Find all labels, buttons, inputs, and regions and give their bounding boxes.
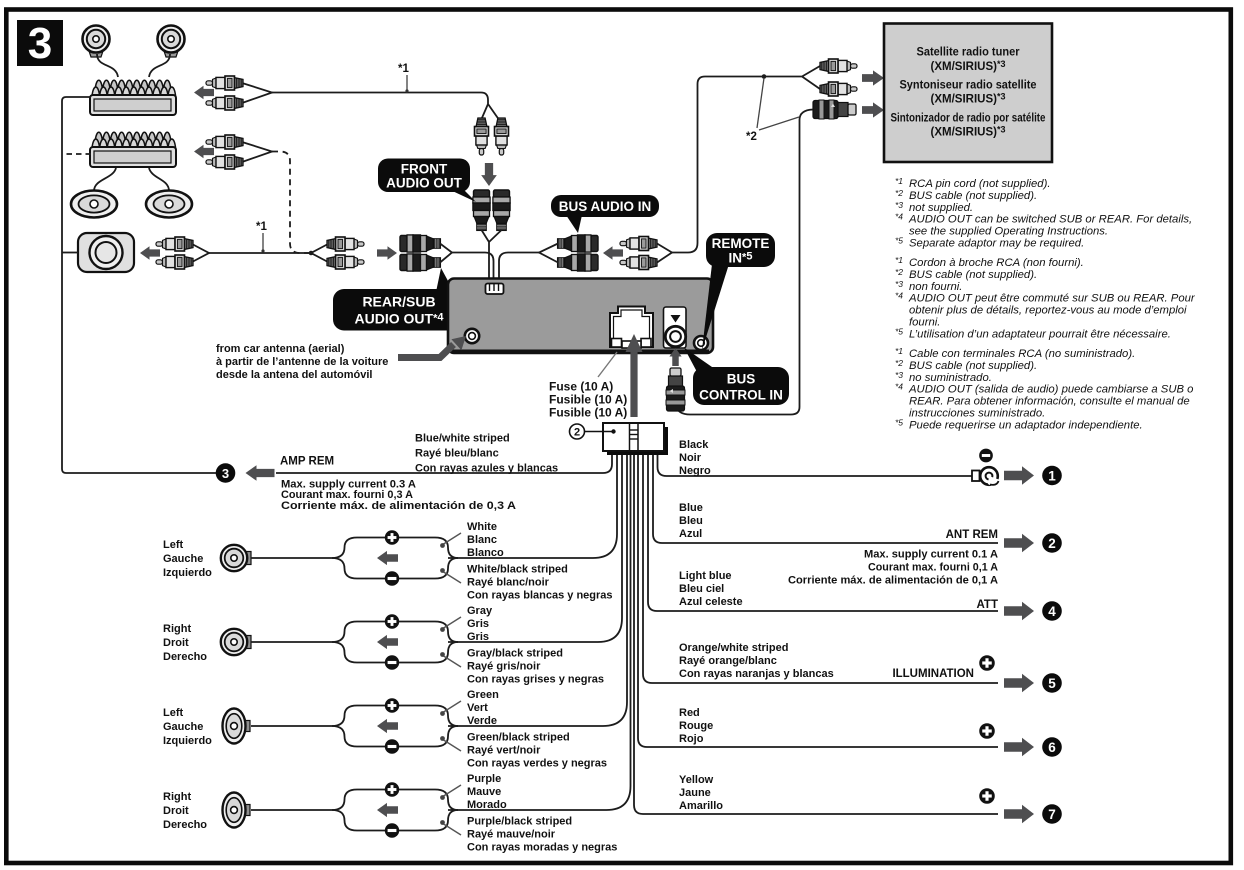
svg-text:AUDIO OUT peut être commuté su: AUDIO OUT peut être commuté sur SUB ou R… <box>908 293 1196 305</box>
svg-text:fourni.: fourni. <box>909 317 940 329</box>
svg-text:obtenir plus de détails, repor: obtenir plus de détails, reportez-vous a… <box>909 305 1187 317</box>
svg-text:Rayé orange/blanc: Rayé orange/blanc <box>679 655 777 667</box>
svg-text:(XM/SIRIUS)*3: (XM/SIRIUS)*3 <box>931 92 1006 106</box>
svg-text:Blanc: Blanc <box>467 534 497 546</box>
svg-text:Con rayas blancas y negras: Con rayas blancas y negras <box>467 590 613 602</box>
svg-text:Blanco: Blanco <box>467 547 504 559</box>
svg-text:*4: *4 <box>895 382 903 392</box>
svg-text:Green: Green <box>467 689 499 701</box>
svg-text:Purple/black striped: Purple/black striped <box>467 816 572 828</box>
svg-text:Rouge: Rouge <box>679 720 713 732</box>
svg-text:Rayé mauve/noir: Rayé mauve/noir <box>467 829 556 841</box>
svg-text:7: 7 <box>1048 807 1056 822</box>
svg-text:3: 3 <box>222 466 229 481</box>
svg-text:*5: *5 <box>895 417 903 427</box>
svg-text:Con rayas verdes y negras: Con rayas verdes y negras <box>467 758 607 770</box>
svg-text:*1: *1 <box>398 63 409 75</box>
svg-text:Verde: Verde <box>467 715 497 727</box>
svg-text:*1: *1 <box>895 346 903 356</box>
svg-text:Cable con terminales RCA (no s: Cable con terminales RCA (no suministrad… <box>909 348 1135 360</box>
svg-text:BUS cable (not supplied).: BUS cable (not supplied). <box>909 190 1037 202</box>
svg-text:instrucciones suministrado.: instrucciones suministrado. <box>909 408 1045 420</box>
svg-text:ATT: ATT <box>976 599 998 611</box>
svg-text:Gris: Gris <box>467 618 489 630</box>
svg-text:from car antenna (aerial): from car antenna (aerial) <box>216 343 345 355</box>
svg-text:desde la antena del automóvil: desde la antena del automóvil <box>216 369 373 381</box>
svg-text:*3: *3 <box>895 279 903 289</box>
svg-text:Yellow: Yellow <box>679 774 714 786</box>
svg-text:Con rayas naranjas y blancas: Con rayas naranjas y blancas <box>679 668 834 680</box>
svg-text:Rayé vert/noir: Rayé vert/noir <box>467 745 541 757</box>
svg-text:BUS cable (not supplied).: BUS cable (not supplied). <box>909 269 1037 281</box>
svg-text:Green/black striped: Green/black striped <box>467 732 570 744</box>
svg-text:Gray/black striped: Gray/black striped <box>467 648 563 660</box>
svg-text:Purple: Purple <box>467 773 501 785</box>
svg-text:Light blue: Light blue <box>679 570 732 582</box>
svg-text:Con rayas grises y negras: Con rayas grises y negras <box>467 674 604 686</box>
svg-text:Derecho: Derecho <box>163 651 207 663</box>
svg-text:(XM/SIRIUS)*3: (XM/SIRIUS)*3 <box>931 125 1006 139</box>
svg-text:*4: *4 <box>895 212 903 222</box>
svg-text:White: White <box>467 521 497 533</box>
svg-text:Left: Left <box>163 539 184 551</box>
svg-text:AUDIO OUT (salida de audio) pu: AUDIO OUT (salida de audio) puede cambia… <box>908 384 1193 396</box>
svg-text:Fuse (10 A): Fuse (10 A) <box>549 380 613 394</box>
svg-text:(XM/SIRIUS)*3: (XM/SIRIUS)*3 <box>931 59 1006 73</box>
svg-text:REAR. Para obtener información: REAR. Para obtener información, consulte… <box>909 396 1190 408</box>
svg-text:RCA pin cord (not supplied).: RCA pin cord (not supplied). <box>909 178 1051 190</box>
svg-text:BUS: BUS <box>727 372 756 387</box>
svg-text:Red: Red <box>679 707 700 719</box>
svg-text:Puede requerirse un adaptador: Puede requerirse un adaptador independie… <box>909 419 1143 431</box>
svg-text:3: 3 <box>28 19 52 68</box>
svg-text:AUDIO OUT*4: AUDIO OUT*4 <box>355 311 445 327</box>
svg-text:Corriente máx. de alimentación: Corriente máx. de alimentación de 0,1 A <box>788 575 998 587</box>
svg-text:ANT REM: ANT REM <box>946 529 998 541</box>
svg-text:Con rayas azules y blancas: Con rayas azules y blancas <box>415 463 558 475</box>
svg-text:Droit: Droit <box>163 805 189 817</box>
svg-text:*1: *1 <box>256 221 267 233</box>
svg-text:Gray: Gray <box>467 605 493 617</box>
svg-text:*1: *1 <box>895 176 903 186</box>
svg-text:Blue: Blue <box>679 502 703 514</box>
svg-text:Droit: Droit <box>163 637 189 649</box>
svg-text:not supplied.: not supplied. <box>909 202 973 214</box>
svg-text:Fusible (10 A): Fusible (10 A) <box>549 406 627 420</box>
svg-text:Fusible (10 A): Fusible (10 A) <box>549 393 627 407</box>
svg-text:Azul: Azul <box>679 528 702 540</box>
svg-text:AUDIO OUT: AUDIO OUT <box>386 176 463 191</box>
svg-text:Mauve: Mauve <box>467 786 501 798</box>
svg-text:Syntoniseur radio satellite: Syntoniseur radio satellite <box>900 80 1037 92</box>
svg-text:Blue/white striped: Blue/white striped <box>415 433 510 445</box>
svg-text:Derecho: Derecho <box>163 819 207 831</box>
svg-text:REMOTE: REMOTE <box>712 236 770 251</box>
svg-text:non fourni.: non fourni. <box>909 281 962 293</box>
svg-text:6: 6 <box>1048 740 1056 755</box>
svg-text:à partir de l’antenne de la vo: à partir de l’antenne de la voiture <box>216 356 388 368</box>
svg-text:2: 2 <box>1048 536 1056 551</box>
svg-text:Con rayas moradas y negras: Con rayas moradas y negras <box>467 842 617 854</box>
svg-text:Gris: Gris <box>467 631 489 643</box>
svg-text:see the supplied Operating Ins: see the supplied Operating Instructions. <box>909 226 1108 238</box>
svg-text:Gauche: Gauche <box>163 721 203 733</box>
svg-text:2: 2 <box>574 427 580 439</box>
svg-text:5: 5 <box>1048 676 1056 691</box>
svg-text:Vert: Vert <box>467 702 488 714</box>
svg-text:Izquierdo: Izquierdo <box>163 735 212 747</box>
svg-text:*3: *3 <box>895 370 903 380</box>
svg-text:Right: Right <box>163 791 191 803</box>
svg-text:*2: *2 <box>895 267 903 277</box>
svg-text:Rayé bleu/blanc: Rayé bleu/blanc <box>415 448 499 460</box>
svg-text:L’utilisation d’un adaptateur: L’utilisation d’un adaptateur pourrait ê… <box>909 328 1171 340</box>
svg-text:Courant max. fourni 0,1 A: Courant max. fourni 0,1 A <box>868 562 998 574</box>
svg-text:Morado: Morado <box>467 799 507 811</box>
svg-text:CONTROL IN: CONTROL IN <box>699 388 783 403</box>
svg-text:Sintonizador de radio por saté: Sintonizador de radio por satélite <box>891 113 1046 125</box>
svg-text:Bleu: Bleu <box>679 515 703 527</box>
svg-text:Izquierdo: Izquierdo <box>163 567 212 579</box>
svg-text:White/black striped: White/black striped <box>467 564 568 576</box>
svg-text:Bleu ciel: Bleu ciel <box>679 583 724 595</box>
svg-text:no suministrado.: no suministrado. <box>909 372 992 384</box>
svg-text:Black: Black <box>679 439 709 451</box>
svg-text:*4: *4 <box>895 291 903 301</box>
svg-text:Satellite radio tuner: Satellite radio tuner <box>917 47 1021 59</box>
svg-text:*2: *2 <box>746 131 757 143</box>
svg-text:1: 1 <box>1048 468 1056 483</box>
svg-text:Rayé blanc/noir: Rayé blanc/noir <box>467 577 550 589</box>
svg-text:Gauche: Gauche <box>163 553 203 565</box>
svg-text:Jaune: Jaune <box>679 787 711 799</box>
svg-text:Rayé gris/noir: Rayé gris/noir <box>467 661 541 673</box>
svg-text:REAR/SUB: REAR/SUB <box>362 294 435 310</box>
svg-text:BUS cable (not supplied).: BUS cable (not supplied). <box>909 360 1037 372</box>
svg-text:Right: Right <box>163 623 191 635</box>
svg-text:Corriente máx. de alimentación: Corriente máx. de alimentación de 0,3 A <box>281 500 516 512</box>
svg-text:Max. supply current 0.1 A: Max. supply current 0.1 A <box>864 549 998 561</box>
svg-text:Cordon à broche RCA (non fourn: Cordon à broche RCA (non fourni). <box>909 257 1084 269</box>
svg-text:FRONT: FRONT <box>401 162 448 177</box>
svg-text:*1: *1 <box>895 255 903 265</box>
svg-text:*2: *2 <box>895 188 903 198</box>
svg-text:Amarillo: Amarillo <box>679 800 723 812</box>
svg-text:Azul celeste: Azul celeste <box>679 596 743 608</box>
svg-text:Left: Left <box>163 707 184 719</box>
svg-text:4: 4 <box>1048 604 1056 619</box>
svg-text:AMP REM: AMP REM <box>280 456 334 468</box>
svg-text:Negro: Negro <box>679 465 711 477</box>
svg-text:BUS AUDIO IN: BUS AUDIO IN <box>559 199 652 214</box>
svg-text:*3: *3 <box>895 200 903 210</box>
svg-text:Noir: Noir <box>679 452 702 464</box>
svg-text:Rojo: Rojo <box>679 733 704 745</box>
svg-text:*5: *5 <box>895 326 903 336</box>
svg-text:*2: *2 <box>895 358 903 368</box>
svg-text:Orange/white striped: Orange/white striped <box>679 642 788 654</box>
svg-text:*5: *5 <box>895 236 903 246</box>
svg-text:AUDIO OUT can be switched SUB: AUDIO OUT can be switched SUB or REAR. F… <box>908 214 1192 226</box>
svg-text:Separate adaptor may be requir: Separate adaptor may be required. <box>909 238 1084 250</box>
svg-text:ILLUMINATION: ILLUMINATION <box>892 668 974 680</box>
